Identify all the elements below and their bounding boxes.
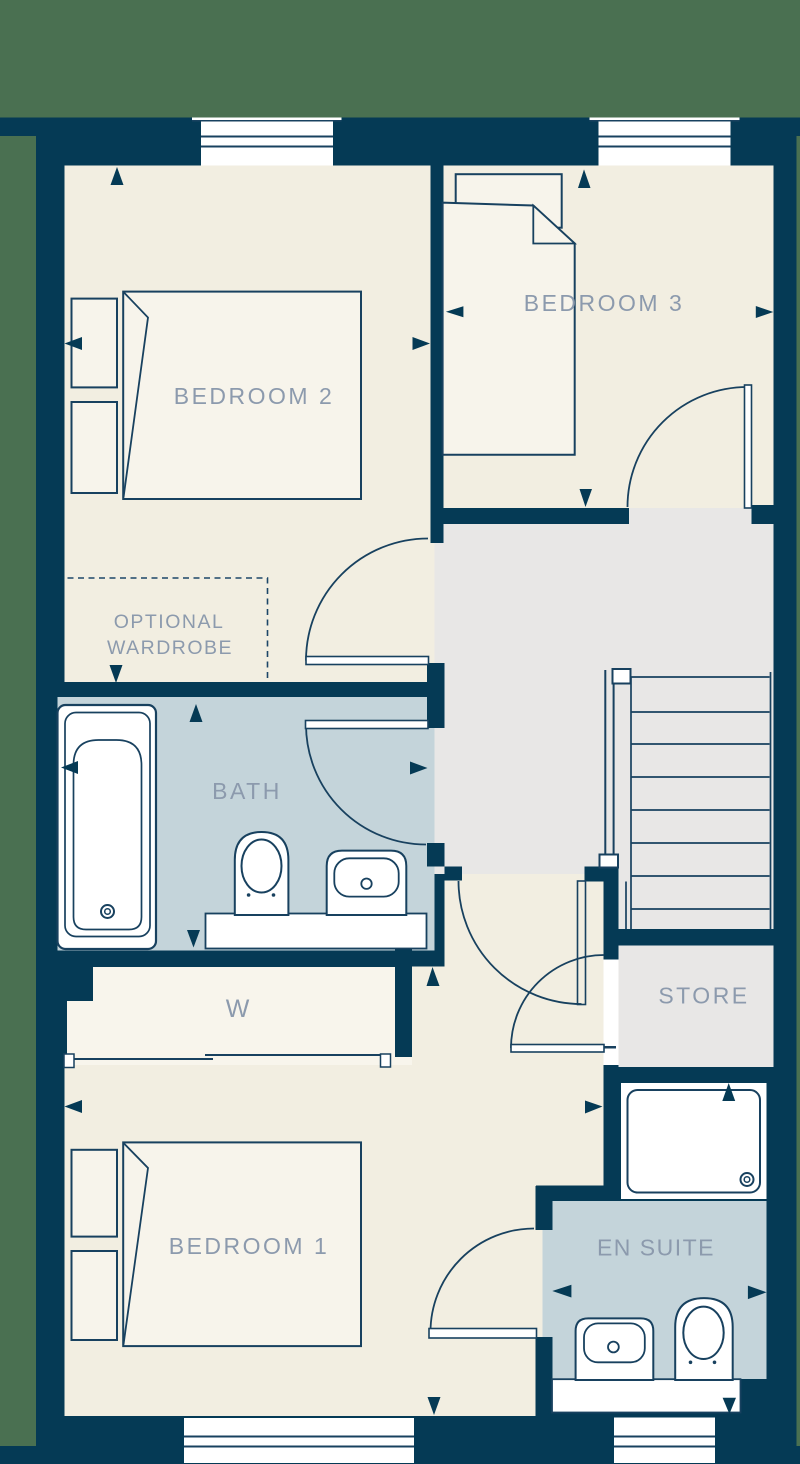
svg-text:WARDROBE: WARDROBE: [107, 637, 233, 659]
svg-text:OPTIONAL: OPTIONAL: [114, 611, 225, 633]
svg-text:BEDROOM 3: BEDROOM 3: [524, 290, 685, 316]
svg-text:BATH: BATH: [212, 778, 282, 804]
svg-text:EN SUITE: EN SUITE: [597, 1235, 715, 1261]
svg-text:W: W: [226, 995, 250, 1023]
svg-text:STORE: STORE: [658, 983, 749, 1009]
svg-text:BEDROOM 1: BEDROOM 1: [169, 1233, 330, 1259]
svg-text:BEDROOM 2: BEDROOM 2: [174, 383, 335, 409]
